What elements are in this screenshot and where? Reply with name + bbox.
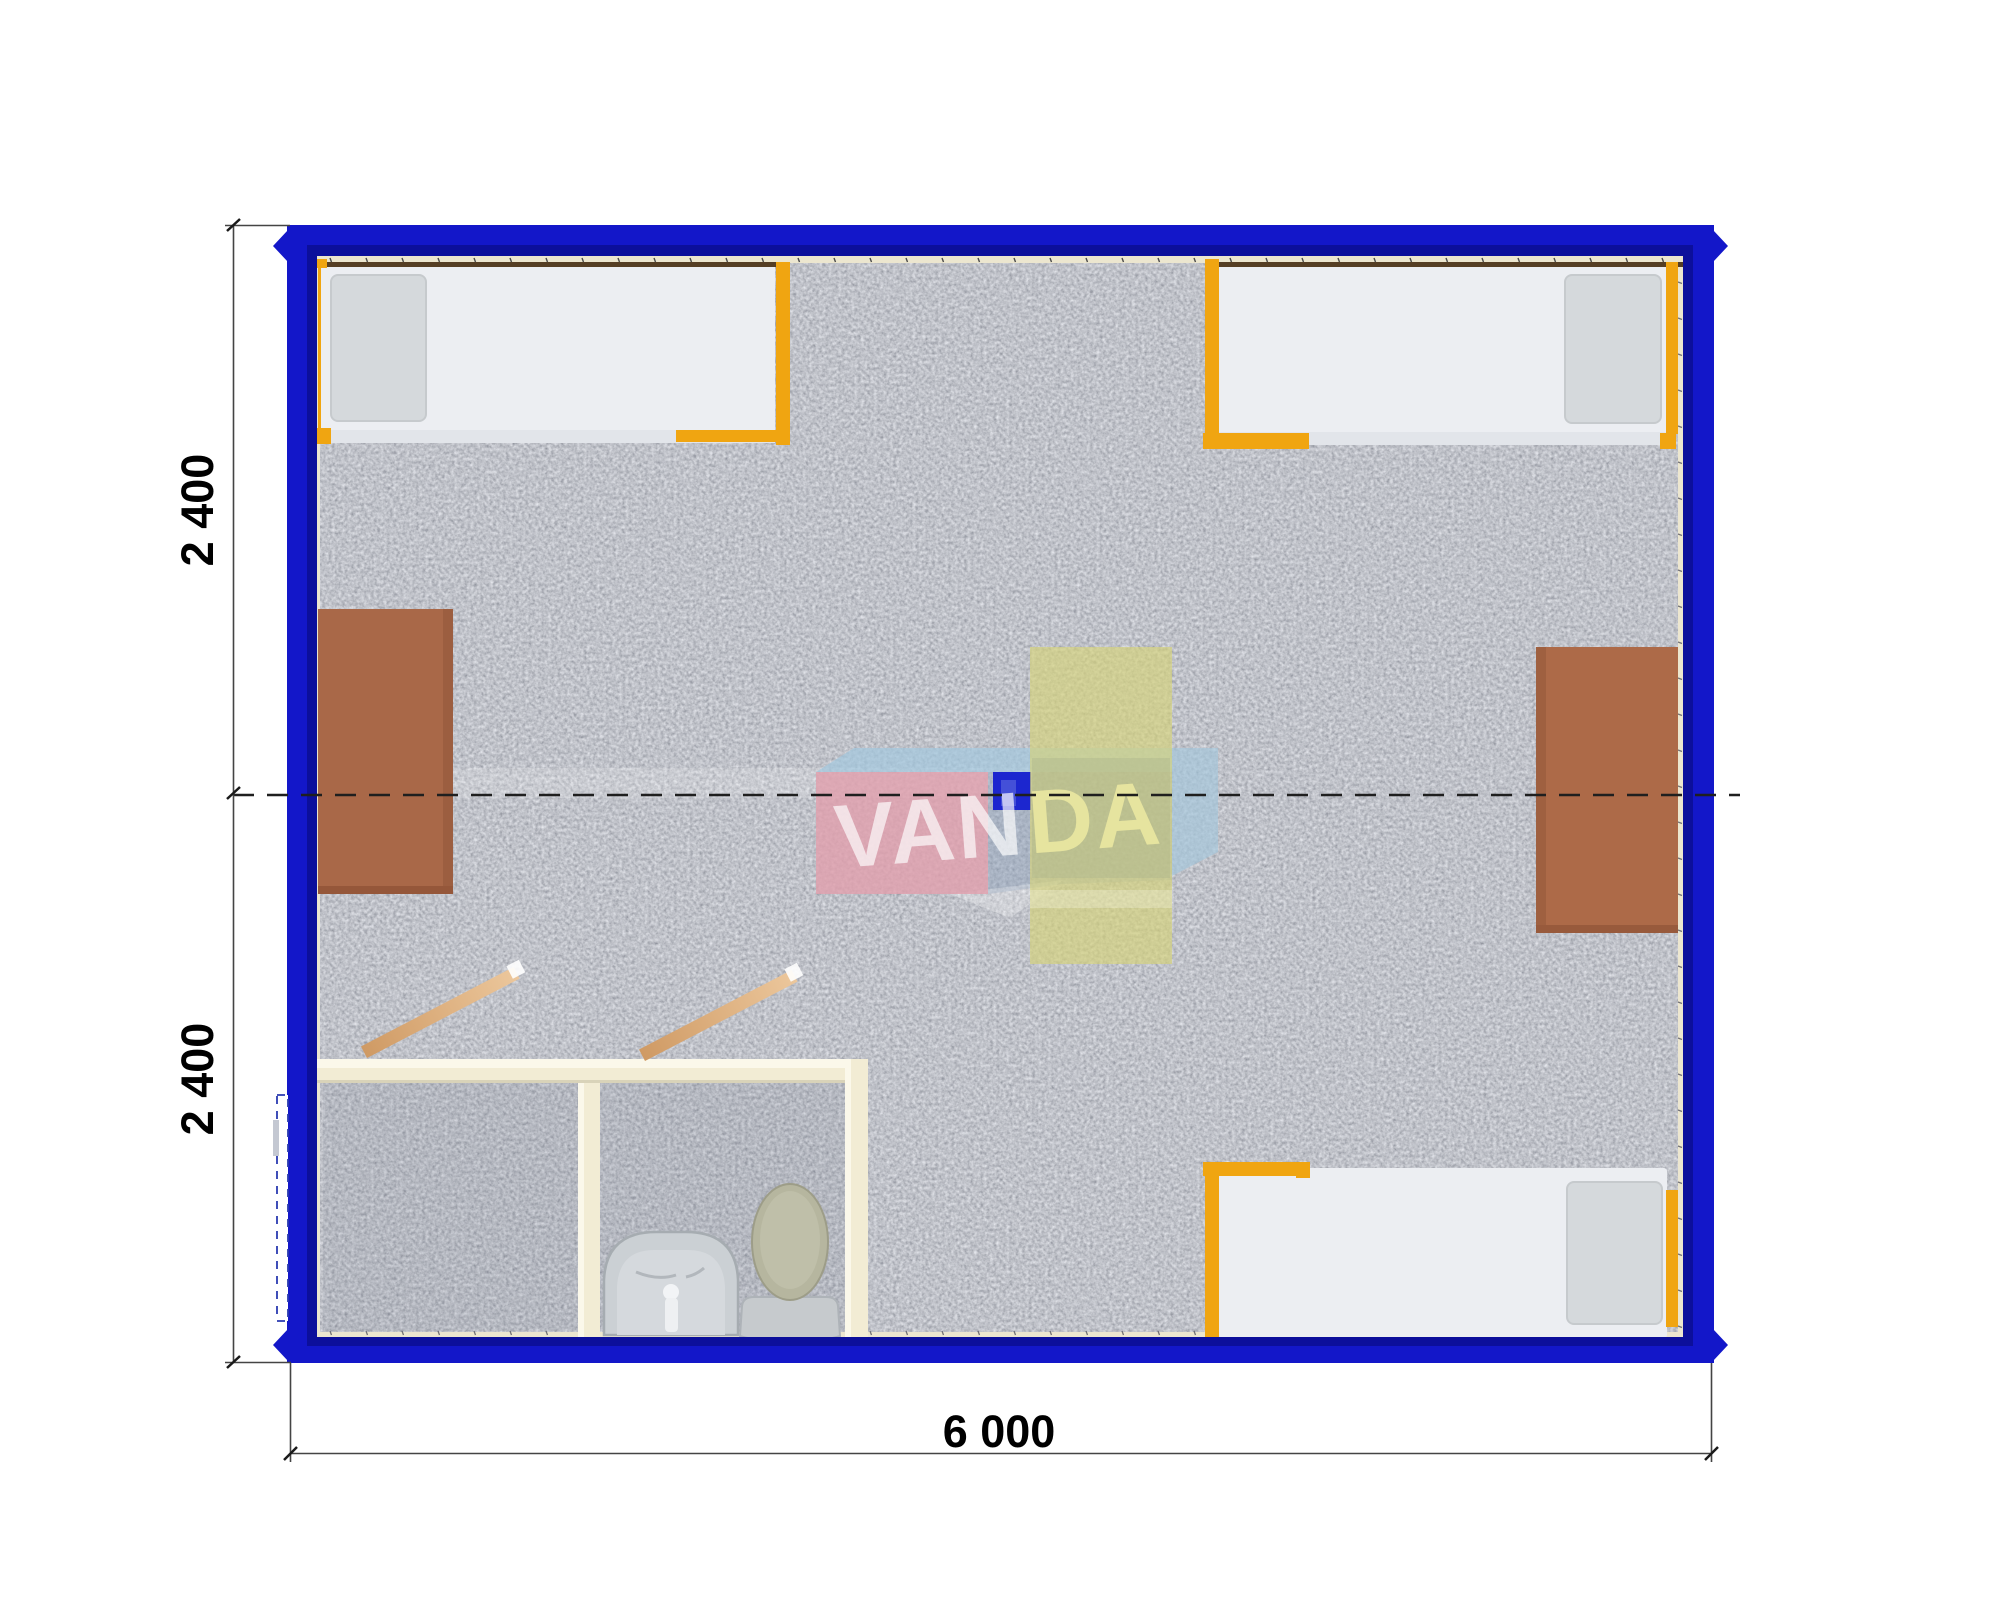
- svg-text:6 000: 6 000: [943, 1406, 1056, 1457]
- svg-text:2 400: 2 400: [172, 1023, 223, 1136]
- svg-text:2 400: 2 400: [172, 454, 223, 567]
- svg-text:DA: DA: [1024, 764, 1165, 874]
- svg-text:VAN: VAN: [831, 774, 1027, 888]
